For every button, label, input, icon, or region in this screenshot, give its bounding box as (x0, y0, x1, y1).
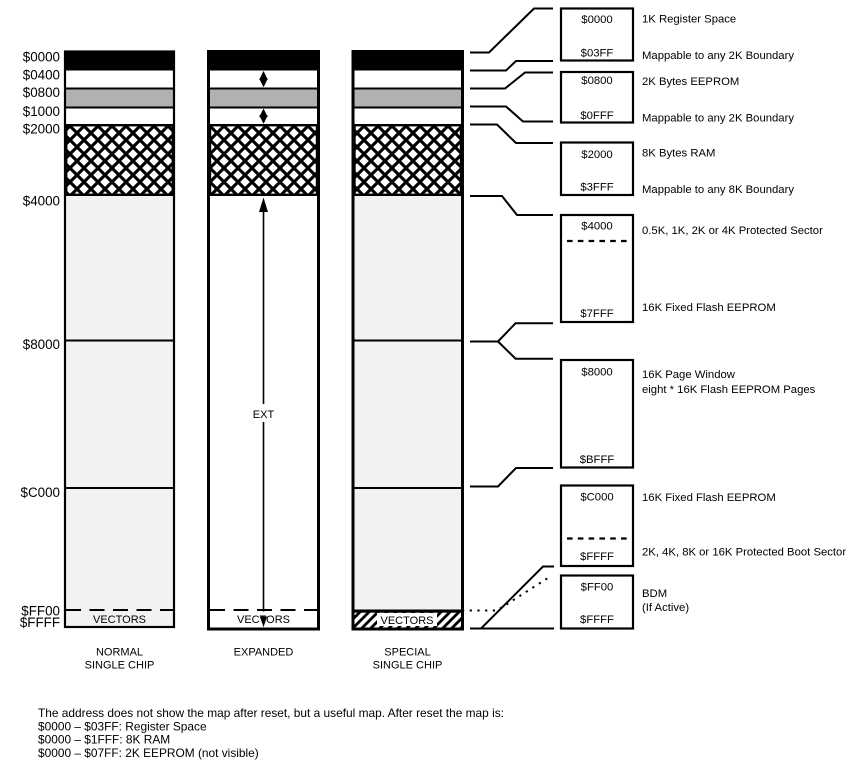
svg-text:$FFFF: $FFFF (20, 615, 60, 630)
svg-text:$FFFF: $FFFF (580, 551, 614, 563)
svg-text:16K Fixed Flash EEPROM: 16K Fixed Flash EEPROM (642, 302, 776, 314)
svg-text:BDM: BDM (642, 588, 667, 600)
svg-text:$0000: $0000 (581, 14, 612, 26)
svg-text:0.5K, 1K, 2K or 4K Protected S: 0.5K, 1K, 2K or 4K Protected Sector (642, 225, 823, 237)
svg-text:2K, 4K, 8K or 16K Protected Bo: 2K, 4K, 8K or 16K Protected Boot Sector (642, 547, 846, 559)
svg-text:SINGLE CHIP: SINGLE CHIP (373, 660, 443, 672)
svg-text:$0000 – $1FFF: 8K RAM: $0000 – $1FFF: 8K RAM (38, 733, 170, 747)
svg-text:$0000 – $07FF: 2K EEPROM (not: $0000 – $07FF: 2K EEPROM (not visible) (38, 746, 259, 760)
svg-text:VECTORS: VECTORS (381, 615, 434, 627)
svg-text:2K Bytes EEPROM: 2K Bytes EEPROM (642, 76, 739, 88)
svg-text:$0800: $0800 (23, 85, 60, 100)
svg-text:EXT: EXT (253, 409, 275, 421)
svg-text:$0000 – $03FF: Register Space: $0000 – $03FF: Register Space (38, 719, 207, 733)
svg-text:NORMAL: NORMAL (96, 647, 143, 659)
svg-text:$8000: $8000 (581, 367, 612, 379)
svg-text:$8000: $8000 (23, 337, 60, 352)
svg-text:$FFFF: $FFFF (580, 614, 614, 626)
svg-text:VECTORS: VECTORS (93, 614, 146, 626)
svg-text:$2000: $2000 (581, 149, 612, 161)
svg-text:The address does not show the: The address does not show the map after … (38, 706, 504, 720)
svg-text:$C000: $C000 (580, 492, 613, 504)
svg-text:EXPANDED: EXPANDED (234, 647, 294, 659)
svg-text:$7FFF: $7FFF (580, 308, 613, 320)
svg-text:8K Bytes RAM: 8K Bytes RAM (642, 148, 715, 160)
svg-text:Mappable to any 2K Boundary: Mappable to any 2K Boundary (642, 50, 794, 62)
svg-text:eight * 16K Flash EEPROM Pages: eight * 16K Flash EEPROM Pages (642, 384, 816, 396)
svg-text:$FF00: $FF00 (581, 582, 614, 594)
svg-text:$0400: $0400 (23, 68, 60, 83)
svg-text:$BFFF: $BFFF (580, 454, 615, 466)
svg-text:16K Page Window: 16K Page Window (642, 369, 736, 381)
svg-text:Mappable to any 2K Boundary: Mappable to any 2K Boundary (642, 113, 794, 125)
svg-text:(If Active): (If Active) (642, 602, 689, 614)
svg-text:16K Fixed Flash EEPROM: 16K Fixed Flash EEPROM (642, 492, 776, 504)
svg-text:$2000: $2000 (23, 122, 60, 137)
svg-text:$03FF: $03FF (581, 48, 614, 60)
svg-text:SPECIAL: SPECIAL (384, 647, 430, 659)
svg-text:$4000: $4000 (23, 194, 60, 209)
svg-text:$0000: $0000 (23, 50, 60, 65)
svg-text:Mappable to any 8K Boundary: Mappable to any 8K Boundary (642, 184, 794, 196)
svg-text:$C000: $C000 (21, 485, 60, 500)
svg-text:$3FFF: $3FFF (580, 182, 613, 194)
svg-text:1K Register Space: 1K Register Space (642, 14, 736, 26)
svg-text:$4000: $4000 (581, 221, 612, 233)
svg-text:$1000: $1000 (23, 104, 60, 119)
svg-text:SINGLE CHIP: SINGLE CHIP (85, 660, 155, 672)
svg-text:$0FFF: $0FFF (580, 110, 613, 122)
svg-text:$0800: $0800 (581, 75, 612, 87)
